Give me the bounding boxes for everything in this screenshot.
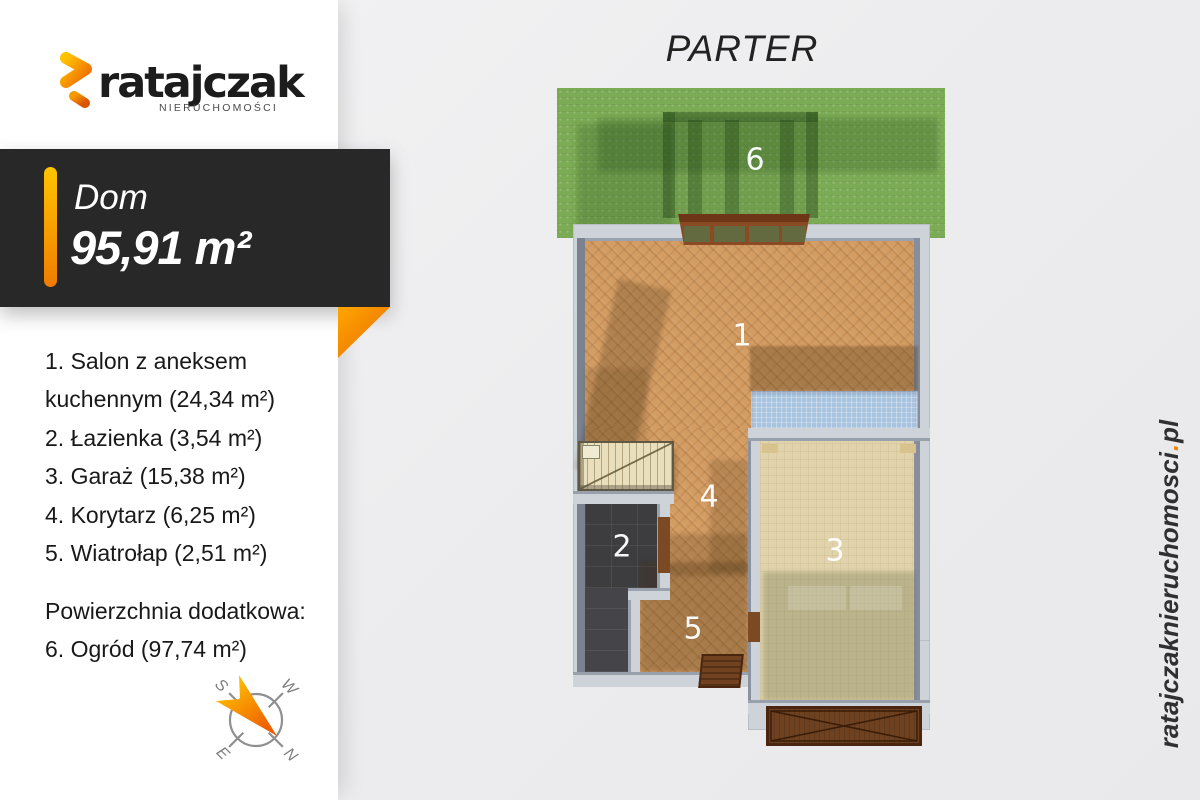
brand-subtitle: NIERUCHOMOŚCI <box>96 102 278 114</box>
logo-mark-icon <box>58 52 96 114</box>
pergola-shadow <box>663 112 818 218</box>
legend-line: 5. Wiatrołap (2,51 m²) <box>45 534 330 572</box>
garage-door-mat <box>766 706 922 746</box>
legend: 1. Salon z aneksem kuchennym (24,34 m²) … <box>45 342 330 572</box>
watermark-dot: . <box>1154 444 1185 451</box>
compass-letter-n: N <box>280 745 301 766</box>
stairs-newel <box>582 445 600 459</box>
badge-fold-triangle <box>338 307 390 358</box>
garage-corner-tab <box>762 444 778 453</box>
stairs-bottom-wall <box>573 491 674 504</box>
garage-top-wall <box>748 428 930 441</box>
brand-name: ratajczak <box>98 58 303 108</box>
bathroom-jog-wall-v <box>628 600 640 672</box>
room-label-garaz: 3 <box>825 534 844 569</box>
watermark-link[interactable]: ratajczaknieruchomosci.pl <box>1148 384 1190 784</box>
property-type: Dom <box>74 178 148 218</box>
property-area: 95,91 m² <box>70 220 250 275</box>
room-label-lazienka: 2 <box>612 530 631 565</box>
room-label-garden: 6 <box>745 143 764 178</box>
garage-door <box>748 612 760 642</box>
room-label-wiatrolap: 5 <box>683 612 702 647</box>
garage-left-wall <box>748 441 760 700</box>
watermark-tld: pl <box>1154 420 1185 443</box>
garden-shadow-left <box>577 124 673 226</box>
bathroom-jog-wall-h <box>628 588 670 600</box>
car-shadow-highlight <box>788 586 846 610</box>
legend-extra-title: Powierzchnia dodatkowa: <box>45 598 306 625</box>
bathroom-door <box>658 517 670 573</box>
page-background: ratajczak NIERUCHOMOŚCI Dom 95,91 m² 1. … <box>0 0 1200 800</box>
legend-line: 2. Łazienka (3,54 m²) <box>45 419 330 457</box>
legend-line: 4. Korytarz (6,25 m²) <box>45 496 330 534</box>
terrace-door <box>674 214 814 245</box>
car-shadow-highlight <box>850 586 902 610</box>
legend-line: 3. Garaż (15,38 m²) <box>45 457 330 495</box>
badge-accent-bar <box>44 167 57 287</box>
stairs <box>578 441 674 491</box>
legend-line: 1. Salon z aneksem <box>45 342 330 380</box>
garage-corner-tab <box>900 444 916 453</box>
entry-mat <box>698 654 744 688</box>
compass: N E S W <box>195 658 320 783</box>
kitchen-counter-shadow <box>750 346 918 391</box>
legend-line: kuchennym (24,34 m²) <box>45 380 330 418</box>
room-label-salon: 1 <box>732 319 751 354</box>
floor-title: PARTER <box>617 28 867 70</box>
kitchen-counter <box>751 391 918 428</box>
room-label-korytarz: 4 <box>699 480 718 515</box>
watermark-name: ratajczaknieruchomosci <box>1154 452 1185 748</box>
bathroom-floor-lower <box>585 588 628 672</box>
compass-letter-s: S <box>211 676 231 696</box>
